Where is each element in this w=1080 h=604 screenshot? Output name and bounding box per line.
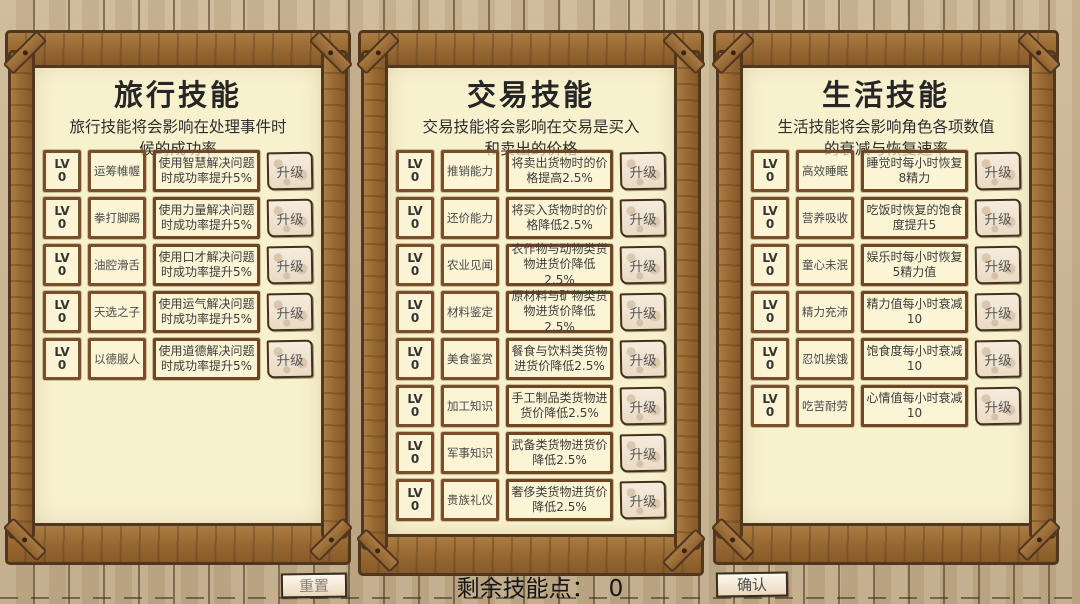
panel-title: 交易技能 (383, 72, 679, 114)
upgrade-button[interactable]: 升级 (620, 481, 667, 520)
skill-name: 精力充沛 (796, 291, 854, 333)
skill-description-text: 饱食度每小时衰减10 (866, 344, 963, 375)
level-value: 0 (411, 359, 419, 372)
skill-description-text: 使用道德解决问题时成功率提升5% (158, 344, 255, 375)
upgrade-button[interactable]: 升级 (975, 387, 1022, 426)
upgrade-button-label: 升级 (276, 306, 303, 322)
level-value: 0 (766, 218, 774, 231)
skill-name: 以德服人 (88, 338, 146, 380)
upgrade-button[interactable]: 升级 (620, 434, 667, 473)
skill-name: 美食鉴赏 (441, 338, 499, 380)
frame-right (1029, 50, 1056, 539)
skill-name-label: 吃苦耐劳 (802, 398, 848, 414)
upgrade-button[interactable]: 升级 (975, 152, 1022, 191)
upgrade-button-label: 升级 (276, 259, 303, 275)
skill-description-text: 原材料与矿物类货物进货价降低2.5% (511, 289, 608, 336)
upgrade-button[interactable]: 升级 (620, 246, 667, 285)
level-box: LV 0 (751, 385, 789, 427)
upgrade-button-label: 升级 (984, 306, 1011, 322)
travel-skills-panel: 旅行技能 旅行技能将会影响在处理事件时 候的成功率 LV 0 运筹帷幄 使用智慧… (8, 30, 348, 565)
level-value: 0 (411, 406, 419, 419)
upgrade-button-label: 升级 (276, 212, 303, 228)
frame-right (674, 50, 701, 550)
subtitle-line: 交易技能将会影响在交易是买入 (383, 117, 679, 139)
skill-description: 精力值每小时衰减10 (861, 291, 968, 333)
skill-name-label: 童心未泯 (802, 257, 848, 273)
skill-name: 童心未泯 (796, 244, 854, 286)
level-value: 0 (411, 312, 419, 325)
skill-rows: LV 0 运筹帷幄 使用智慧解决问题时成功率提升5% 升级 LV 0 拳打脚踢 … (43, 150, 313, 380)
upgrade-button[interactable]: 升级 (267, 293, 314, 332)
skill-name-label: 加工知识 (447, 398, 493, 414)
skill-description-text: 餐食与饮料类货物进货价降低2.5% (511, 344, 608, 375)
level-value: 0 (58, 218, 66, 231)
skill-description: 娱乐时每小时恢复5精力值 (861, 244, 968, 286)
frame-left (716, 50, 743, 539)
upgrade-button[interactable]: 升级 (267, 199, 314, 238)
skill-name-label: 美食鉴赏 (447, 351, 493, 367)
panel-paper: 交易技能 交易技能将会影响在交易是买入 和卖出的价格 LV 0 推销能力 将卖出… (383, 60, 679, 540)
upgrade-button[interactable]: 升级 (267, 152, 314, 191)
skill-row: LV 0 美食鉴赏 餐食与饮料类货物进货价降低2.5% 升级 (396, 338, 666, 380)
skill-description: 奢侈类货物进货价降低2.5% (506, 479, 613, 521)
skill-name-label: 贵族礼仪 (447, 492, 493, 508)
upgrade-button-label: 升级 (629, 259, 656, 275)
skill-description-text: 将买入货物时的价格降低2.5% (511, 203, 608, 234)
level-box: LV 0 (396, 291, 434, 333)
skill-row: LV 0 忍饥挨饿 饱食度每小时衰减10 升级 (751, 338, 1021, 380)
upgrade-button-label: 升级 (629, 447, 656, 463)
upgrade-button[interactable]: 升级 (975, 246, 1022, 285)
upgrade-button[interactable]: 升级 (975, 293, 1022, 332)
level-box: LV 0 (751, 291, 789, 333)
level-box: LV 0 (751, 244, 789, 286)
skill-description-text: 使用力量解决问题时成功率提升5% (158, 203, 255, 234)
upgrade-button[interactable]: 升级 (620, 199, 667, 238)
skill-name: 农业见闻 (441, 244, 499, 286)
level-value: 0 (766, 265, 774, 278)
skill-description-text: 武备类货物进货价降低2.5% (511, 438, 608, 469)
level-value: 0 (411, 218, 419, 231)
level-value: 0 (411, 265, 419, 278)
level-box: LV 0 (751, 197, 789, 239)
skill-name: 高效睡眠 (796, 150, 854, 192)
skill-name: 军事知识 (441, 432, 499, 474)
level-value: 0 (766, 312, 774, 325)
skill-name: 营养吸收 (796, 197, 854, 239)
life-skills-panel: 生活技能 生活技能将会影响角色各项数值 的衰减与恢复速率 LV 0 高效睡眠 睡… (716, 30, 1056, 565)
skill-name: 拳打脚踢 (88, 197, 146, 239)
skill-name: 贵族礼仪 (441, 479, 499, 521)
upgrade-button-label: 升级 (276, 165, 303, 181)
level-box: LV 0 (396, 432, 434, 474)
panel-paper: 旅行技能 旅行技能将会影响在处理事件时 候的成功率 LV 0 运筹帷幄 使用智慧… (30, 60, 326, 529)
upgrade-button-label: 升级 (629, 353, 656, 369)
skill-description-text: 睡觉时每小时恢复8精力 (866, 156, 963, 187)
level-box: LV 0 (43, 291, 81, 333)
upgrade-button[interactable]: 升级 (620, 387, 667, 426)
upgrade-button[interactable]: 升级 (975, 199, 1022, 238)
skill-description: 餐食与饮料类货物进货价降低2.5% (506, 338, 613, 380)
skill-description-text: 使用运气解决问题时成功率提升5% (158, 297, 255, 328)
skill-description-text: 使用口才解决问题时成功率提升5% (158, 250, 255, 281)
skill-name-label: 以德服人 (94, 351, 140, 367)
level-box: LV 0 (396, 385, 434, 427)
skill-name-label: 材料鉴定 (447, 304, 493, 320)
level-box: LV 0 (43, 338, 81, 380)
skill-description: 将卖出货物时的价格提高2.5% (506, 150, 613, 192)
level-value: 0 (58, 171, 66, 184)
panel-paper: 生活技能 生活技能将会影响角色各项数值 的衰减与恢复速率 LV 0 高效睡眠 睡… (738, 60, 1034, 529)
skill-name: 吃苦耐劳 (796, 385, 854, 427)
frame-top (358, 30, 704, 68)
skill-name-label: 农业见闻 (447, 257, 493, 273)
skill-description: 吃饭时恢复的饱食度提升5 (861, 197, 968, 239)
skill-row: LV 0 运筹帷幄 使用智慧解决问题时成功率提升5% 升级 (43, 150, 313, 192)
skill-name: 天选之子 (88, 291, 146, 333)
skill-row: LV 0 油腔滑舌 使用口才解决问题时成功率提升5% 升级 (43, 244, 313, 286)
skill-row: LV 0 吃苦耐劳 心情值每小时衰减10 升级 (751, 385, 1021, 427)
frame-bottom (713, 523, 1059, 565)
skill-description: 使用智慧解决问题时成功率提升5% (153, 150, 260, 192)
skill-name: 忍饥挨饿 (796, 338, 854, 380)
skill-row: LV 0 加工知识 手工制品类货物进货价降低2.5% 升级 (396, 385, 666, 427)
skill-name-label: 军事知识 (447, 445, 493, 461)
level-box: LV 0 (43, 244, 81, 286)
level-box: LV 0 (396, 479, 434, 521)
skill-description: 心情值每小时衰减10 (861, 385, 968, 427)
skill-description-text: 农作物与动物类货物进货价降低2.5% (511, 242, 608, 289)
skill-description-text: 奢侈类货物进货价降低2.5% (511, 485, 608, 516)
skill-description: 将买入货物时的价格降低2.5% (506, 197, 613, 239)
frame-top (713, 30, 1059, 68)
upgrade-button-label: 升级 (984, 400, 1011, 416)
skill-name: 还价能力 (441, 197, 499, 239)
upgrade-button-label: 升级 (276, 353, 303, 369)
frame-bottom (5, 523, 351, 565)
skill-screen: { "colors":{ "background":"#c7b291", "fr… (0, 0, 1080, 604)
level-box: LV 0 (751, 150, 789, 192)
panel-title: 生活技能 (738, 72, 1034, 114)
skill-description: 原材料与矿物类货物进货价降低2.5% (506, 291, 613, 333)
trade-skills-panel: 交易技能 交易技能将会影响在交易是买入 和卖出的价格 LV 0 推销能力 将卖出… (361, 30, 701, 576)
skill-description: 使用口才解决问题时成功率提升5% (153, 244, 260, 286)
skill-row: LV 0 天选之子 使用运气解决问题时成功率提升5% 升级 (43, 291, 313, 333)
skill-description: 使用运气解决问题时成功率提升5% (153, 291, 260, 333)
level-box: LV 0 (751, 338, 789, 380)
skill-description-text: 将卖出货物时的价格提高2.5% (511, 156, 608, 187)
level-box: LV 0 (396, 197, 434, 239)
skill-description: 使用道德解决问题时成功率提升5% (153, 338, 260, 380)
skill-row: LV 0 精力充沛 精力值每小时衰减10 升级 (751, 291, 1021, 333)
frame-top (5, 30, 351, 68)
subtitle-line: 旅行技能将会影响在处理事件时 (30, 117, 326, 139)
skill-name-label: 油腔滑舌 (94, 257, 140, 273)
upgrade-button[interactable]: 升级 (620, 293, 667, 332)
upgrade-button[interactable]: 升级 (267, 246, 314, 285)
skill-name: 推销能力 (441, 150, 499, 192)
remaining-skill-points: 剩余技能点：0 (0, 569, 1080, 603)
skill-description-text: 使用智慧解决问题时成功率提升5% (158, 156, 255, 187)
level-value: 0 (766, 171, 774, 184)
skill-description: 手工制品类货物进货价降低2.5% (506, 385, 613, 427)
level-value: 0 (58, 312, 66, 325)
skill-row: LV 0 营养吸收 吃饭时恢复的饱食度提升5 升级 (751, 197, 1021, 239)
skill-description: 睡觉时每小时恢复8精力 (861, 150, 968, 192)
skill-description: 农作物与动物类货物进货价降低2.5% (506, 244, 613, 286)
skill-row: LV 0 以德服人 使用道德解决问题时成功率提升5% 升级 (43, 338, 313, 380)
upgrade-button[interactable]: 升级 (620, 152, 667, 191)
level-value: 0 (58, 265, 66, 278)
skill-row: LV 0 贵族礼仪 奢侈类货物进货价降低2.5% 升级 (396, 479, 666, 521)
skill-description: 使用力量解决问题时成功率提升5% (153, 197, 260, 239)
skill-rows: LV 0 高效睡眠 睡觉时每小时恢复8精力 升级 LV 0 营养吸收 吃饭时恢复… (751, 150, 1021, 427)
skill-row: LV 0 拳打脚踢 使用力量解决问题时成功率提升5% 升级 (43, 197, 313, 239)
skill-name-label: 精力充沛 (802, 304, 848, 320)
level-box: LV 0 (43, 197, 81, 239)
skill-name: 加工知识 (441, 385, 499, 427)
skill-name-label: 拳打脚踢 (94, 210, 140, 226)
upgrade-button-label: 升级 (984, 259, 1011, 275)
level-value: 0 (411, 171, 419, 184)
skill-rows: LV 0 推销能力 将卖出货物时的价格提高2.5% 升级 LV 0 还价能力 将… (396, 150, 666, 521)
upgrade-button-label: 升级 (984, 353, 1011, 369)
frame-right (321, 50, 348, 539)
level-value: 0 (766, 406, 774, 419)
skill-name-label: 运筹帷幄 (94, 163, 140, 179)
skill-name: 运筹帷幄 (88, 150, 146, 192)
frame-left (361, 50, 388, 550)
level-value: 0 (766, 359, 774, 372)
level-box: LV 0 (396, 150, 434, 192)
skill-row: LV 0 材料鉴定 原材料与矿物类货物进货价降低2.5% 升级 (396, 291, 666, 333)
upgrade-button[interactable]: 升级 (975, 340, 1022, 379)
reset-button[interactable]: 重置 (281, 573, 347, 599)
frame-left (8, 50, 35, 539)
skill-name-label: 天选之子 (94, 304, 140, 320)
skill-description: 饱食度每小时衰减10 (861, 338, 968, 380)
skill-description-text: 吃饭时恢复的饱食度提升5 (866, 203, 963, 234)
points-label: 剩余技能点： (457, 576, 595, 602)
skill-description-text: 娱乐时每小时恢复5精力值 (866, 250, 963, 281)
skill-row: LV 0 农业见闻 农作物与动物类货物进货价降低2.5% 升级 (396, 244, 666, 286)
upgrade-button[interactable]: 升级 (267, 340, 314, 379)
skill-name-label: 营养吸收 (802, 210, 848, 226)
level-box: LV 0 (396, 338, 434, 380)
confirm-button[interactable]: 确认 (716, 571, 788, 597)
subtitle-line: 生活技能将会影响角色各项数值 (738, 117, 1034, 139)
upgrade-button-label: 升级 (629, 400, 656, 416)
skill-description-text: 精力值每小时衰减10 (866, 297, 963, 328)
skill-description-text: 手工制品类货物进货价降低2.5% (511, 391, 608, 422)
level-value: 0 (58, 359, 66, 372)
skill-name-label: 还价能力 (447, 210, 493, 226)
skill-name: 材料鉴定 (441, 291, 499, 333)
upgrade-button-label: 升级 (984, 165, 1011, 181)
upgrade-button-label: 升级 (629, 212, 656, 228)
skill-row: LV 0 童心未泯 娱乐时每小时恢复5精力值 升级 (751, 244, 1021, 286)
skill-name-label: 忍饥挨饿 (802, 351, 848, 367)
upgrade-button[interactable]: 升级 (620, 340, 667, 379)
skill-name-label: 推销能力 (447, 163, 493, 179)
points-value: 0 (609, 576, 624, 602)
skill-row: LV 0 还价能力 将买入货物时的价格降低2.5% 升级 (396, 197, 666, 239)
skill-row: LV 0 高效睡眠 睡觉时每小时恢复8精力 升级 (751, 150, 1021, 192)
skill-name: 油腔滑舌 (88, 244, 146, 286)
skill-description-text: 心情值每小时衰减10 (866, 391, 963, 422)
panel-title: 旅行技能 (30, 72, 326, 114)
skill-name-label: 高效睡眠 (802, 163, 848, 179)
level-value: 0 (411, 500, 419, 513)
skill-description: 武备类货物进货价降低2.5% (506, 432, 613, 474)
upgrade-button-label: 升级 (984, 212, 1011, 228)
skill-row: LV 0 军事知识 武备类货物进货价降低2.5% 升级 (396, 432, 666, 474)
level-value: 0 (411, 453, 419, 466)
level-box: LV 0 (396, 244, 434, 286)
upgrade-button-label: 升级 (629, 165, 656, 181)
skill-row: LV 0 推销能力 将卖出货物时的价格提高2.5% 升级 (396, 150, 666, 192)
upgrade-button-label: 升级 (629, 494, 656, 510)
upgrade-button-label: 升级 (629, 306, 656, 322)
level-box: LV 0 (43, 150, 81, 192)
